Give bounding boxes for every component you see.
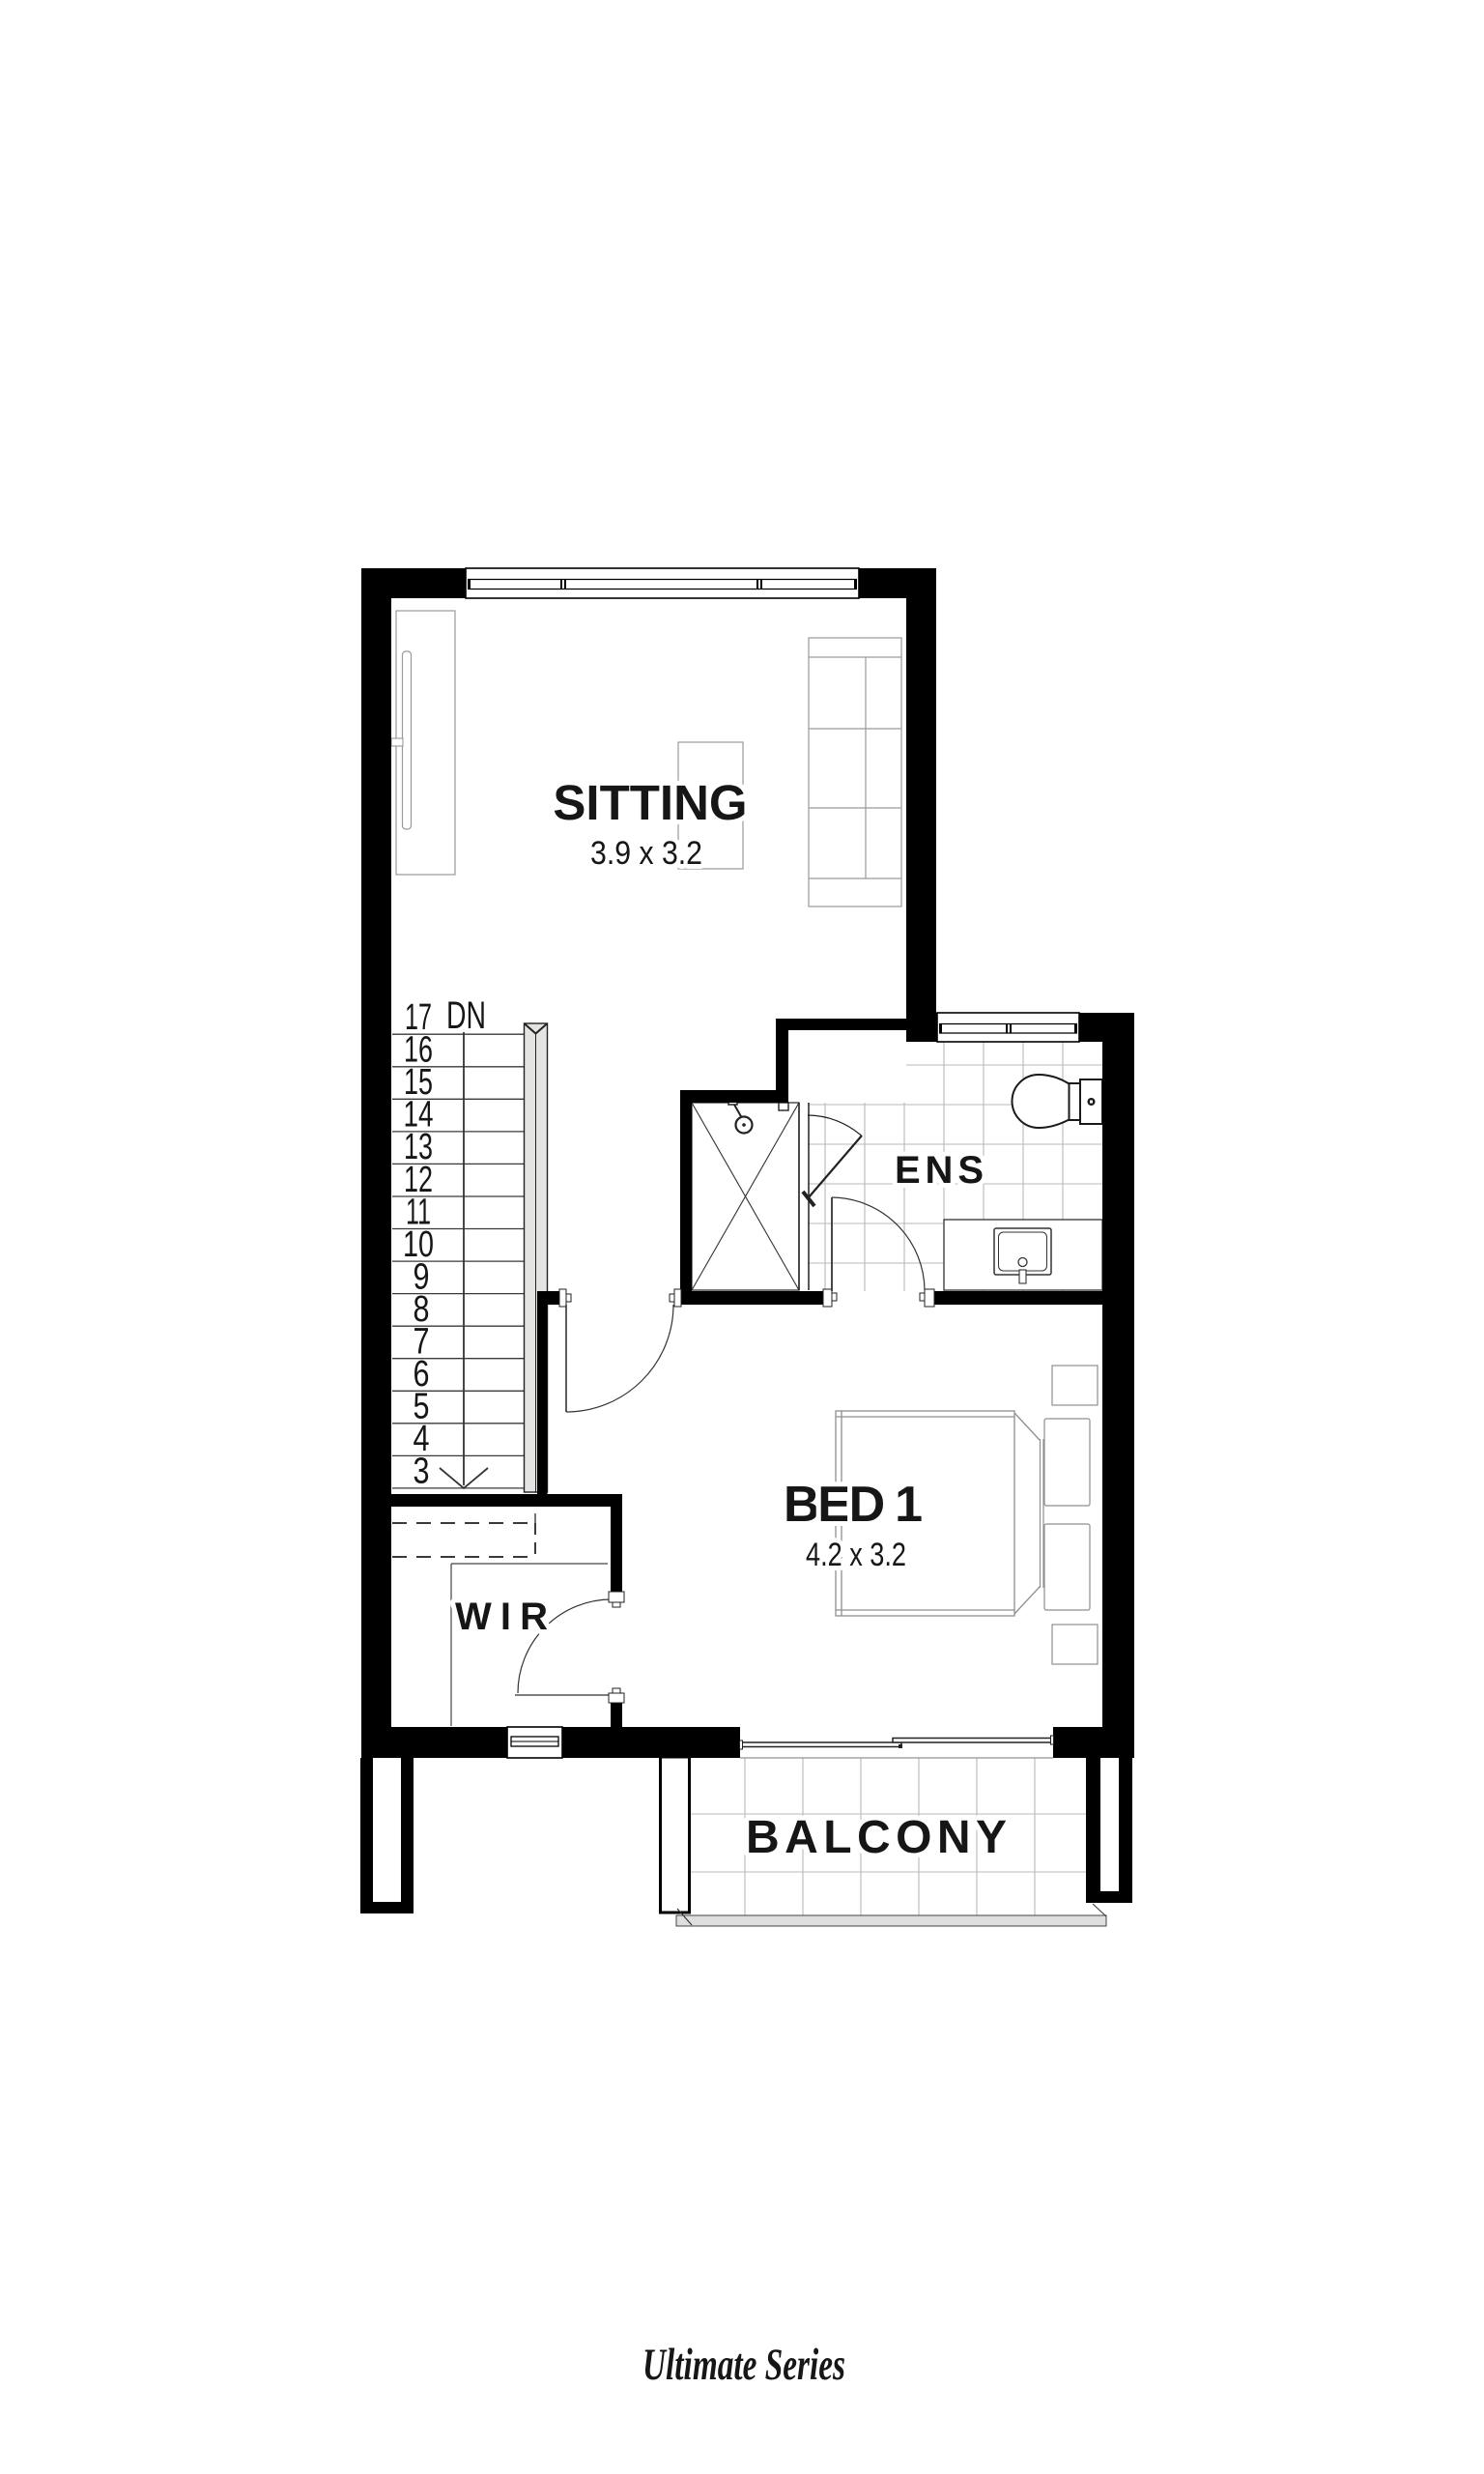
svg-text:3: 3 (414, 1452, 430, 1492)
svg-text:Ultimate Series: Ultimate Series (642, 2340, 845, 2390)
svg-text:WIR: WIR (455, 1596, 548, 1638)
svg-text:4.2 x 3.2: 4.2 x 3.2 (806, 1537, 906, 1573)
svg-text:ENS: ENS (895, 1149, 984, 1192)
svg-text:BED 1: BED 1 (784, 1477, 923, 1533)
svg-text:3.9 x 3.2: 3.9 x 3.2 (590, 835, 702, 872)
svg-text:SITTING: SITTING (553, 775, 747, 830)
svg-text:BALCONY: BALCONY (746, 1812, 1007, 1863)
svg-text:DN: DN (446, 994, 486, 1037)
